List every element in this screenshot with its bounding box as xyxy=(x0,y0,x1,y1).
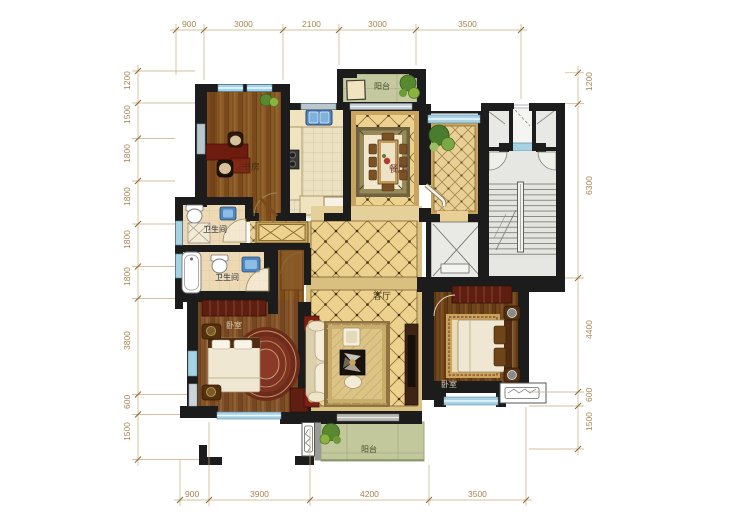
svg-text:餐厅: 餐厅 xyxy=(389,163,407,174)
svg-text:客厅: 客厅 xyxy=(373,290,391,301)
svg-text:3800: 3800 xyxy=(122,331,132,350)
svg-text:1800: 1800 xyxy=(122,230,132,249)
svg-text:1800: 1800 xyxy=(122,187,132,206)
svg-text:1500: 1500 xyxy=(584,412,594,431)
svg-text:3900: 3900 xyxy=(250,489,269,499)
svg-text:3500: 3500 xyxy=(468,489,487,499)
svg-text:3500: 3500 xyxy=(458,19,477,29)
svg-text:阳台: 阳台 xyxy=(361,444,377,454)
svg-text:1500: 1500 xyxy=(122,105,132,124)
svg-text:1800: 1800 xyxy=(122,144,132,163)
svg-text:900: 900 xyxy=(185,489,199,499)
svg-text:卫生间: 卫生间 xyxy=(203,224,227,234)
svg-text:600: 600 xyxy=(122,395,132,409)
svg-text:卫生间: 卫生间 xyxy=(215,272,239,282)
svg-text:4200: 4200 xyxy=(360,489,379,499)
svg-text:2100: 2100 xyxy=(302,19,321,29)
svg-text:4400: 4400 xyxy=(584,320,594,339)
svg-text:卧室: 卧室 xyxy=(441,379,457,389)
svg-text:1800: 1800 xyxy=(122,267,132,286)
svg-text:卧室: 卧室 xyxy=(226,320,242,330)
svg-text:书房: 书房 xyxy=(242,161,260,172)
svg-text:3000: 3000 xyxy=(368,19,387,29)
svg-text:900: 900 xyxy=(182,19,196,29)
svg-text:1200: 1200 xyxy=(584,72,594,91)
svg-text:1500: 1500 xyxy=(122,422,132,441)
svg-text:阳台: 阳台 xyxy=(374,81,390,91)
svg-text:6300: 6300 xyxy=(584,176,594,195)
svg-text:3000: 3000 xyxy=(234,19,253,29)
svg-text:600: 600 xyxy=(584,388,594,402)
svg-text:1200: 1200 xyxy=(122,71,132,90)
